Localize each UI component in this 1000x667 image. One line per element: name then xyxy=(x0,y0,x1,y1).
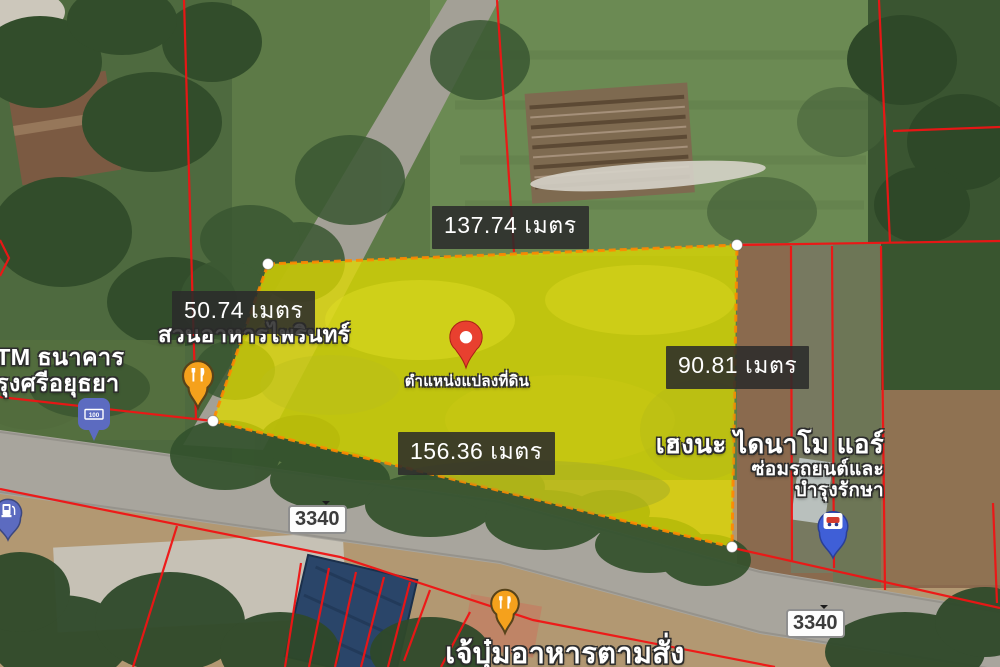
svg-text:100: 100 xyxy=(89,412,100,419)
garage-label-line2: ซ่อมรถยนต์และ xyxy=(620,459,884,480)
measurement-right: 90.81 เมตร xyxy=(666,346,809,389)
bank-label-line1: TM ธนาคาร xyxy=(0,344,124,370)
garage-label-line3: บำรุงรักษา xyxy=(620,480,884,501)
measurement-left: 50.74 เมตร xyxy=(172,291,315,334)
poi-label-restaurant-south[interactable]: เจ้บุ๋มอาหารตามสั่ง xyxy=(445,638,684,667)
garage-label-line1: เฮงนะ ไดนาโม แอร์ xyxy=(620,430,884,459)
measurement-top: 137.74 เมตร xyxy=(432,206,589,249)
route-number: 3340 xyxy=(793,612,838,634)
poi-label-bank[interactable]: TM ธนาคาร รุงศรีอยุธยา xyxy=(0,344,124,397)
car-repair-icon xyxy=(824,513,843,529)
satellite-map[interactable]: 100 สวนอาหารไพรินทร์ TM ธนาคาร รุงศรีอยุ… xyxy=(0,0,1000,667)
poi-label-garage[interactable]: เฮงนะ ไดนาโม แอร์ ซ่อมรถยนต์และ บำรุงรัก… xyxy=(620,430,884,502)
route-number: 3340 xyxy=(295,508,340,530)
pin-inner-dot xyxy=(460,331,472,343)
route-badge-3340-west: 3340 xyxy=(288,505,347,534)
bank-label-line2: รุงศรีอยุธยา xyxy=(0,370,124,396)
parcels-east xyxy=(737,243,1000,588)
measurement-bottom: 156.36 เมตร xyxy=(398,432,555,475)
badge-caret-icon xyxy=(322,501,330,509)
plot-marker-label: ตำแหน่งแปลงที่ดิน xyxy=(405,374,530,391)
route-badge-3340-east: 3340 xyxy=(786,609,845,638)
badge-caret-icon xyxy=(820,605,828,613)
map-canvas: 100 xyxy=(0,0,1000,667)
